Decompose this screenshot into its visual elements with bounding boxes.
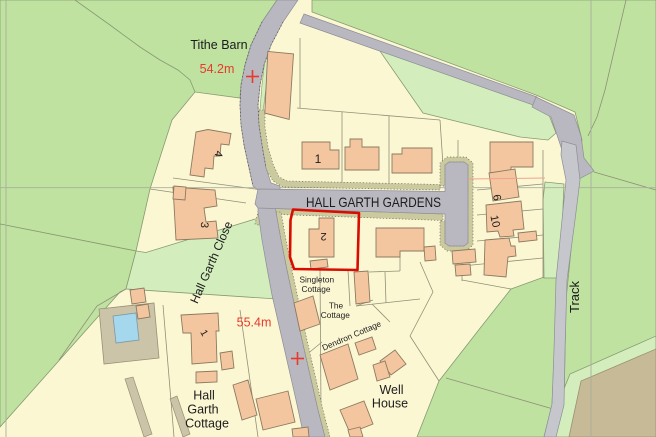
svg-text:House: House bbox=[372, 397, 408, 411]
svg-text:Track: Track bbox=[567, 280, 582, 313]
svg-text:Cottage: Cottage bbox=[321, 310, 350, 320]
svg-text:Cottage: Cottage bbox=[301, 284, 330, 294]
svg-text:HALL GARTH GARDENS: HALL GARTH GARDENS bbox=[306, 194, 441, 210]
svg-text:2: 2 bbox=[320, 230, 326, 242]
svg-text:3: 3 bbox=[198, 221, 210, 228]
svg-text:10: 10 bbox=[487, 214, 501, 228]
svg-text:Tithe Barn: Tithe Barn bbox=[190, 38, 247, 52]
svg-text:The: The bbox=[329, 300, 344, 310]
svg-text:Garth: Garth bbox=[187, 403, 218, 417]
svg-text:Singleton: Singleton bbox=[299, 275, 334, 285]
svg-text:Well: Well bbox=[379, 383, 403, 397]
svg-text:55.4m: 55.4m bbox=[237, 316, 272, 330]
svg-text:1: 1 bbox=[315, 152, 322, 166]
svg-text:54.2m: 54.2m bbox=[200, 62, 235, 76]
svg-text:Hall: Hall bbox=[193, 389, 215, 403]
svg-text:Cottage: Cottage bbox=[185, 417, 229, 431]
